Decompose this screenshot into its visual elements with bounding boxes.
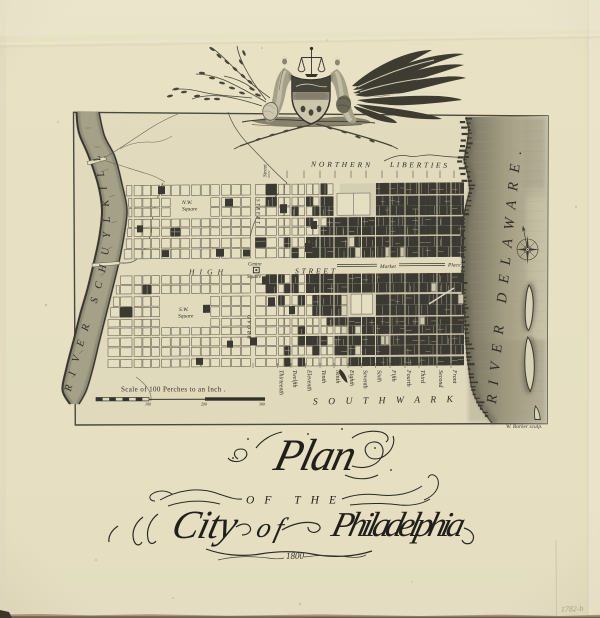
svg-text:L I B E R T I E S: L I B E R T I E S <box>389 160 447 170</box>
svg-text:Eighth: Eighth <box>348 369 354 386</box>
svg-text:Street: Street <box>263 164 269 177</box>
svg-text:200: 200 <box>201 402 207 407</box>
svg-text:Seventh: Seventh <box>362 370 368 389</box>
svg-text:1800: 1800 <box>286 551 305 561</box>
svg-text:S.W.: S.W. <box>179 307 189 313</box>
svg-text:Scale of 100 Perches to an Inc: Scale of 100 Perches to an Inch . <box>121 386 226 394</box>
svg-text:Plan: Plan <box>269 430 363 480</box>
svg-text:BROAD: BROAD <box>247 313 253 339</box>
svg-text:100: 100 <box>145 402 151 407</box>
svg-text:STREET: STREET <box>255 199 260 225</box>
svg-text:Third: Third <box>419 370 425 384</box>
svg-text:Sixth: Sixth <box>376 370 382 382</box>
svg-text:Place: Place <box>447 263 461 269</box>
svg-text:1782-b: 1782-b <box>561 604 584 614</box>
svg-text:Centre: Centre <box>248 263 262 268</box>
svg-text:Eleventh: Eleventh <box>306 369 312 391</box>
svg-text:Philadelphia: Philadelphia <box>327 504 470 543</box>
svg-text:Square: Square <box>178 314 194 320</box>
svg-text:Front: Front <box>451 369 457 384</box>
svg-text:Fourth: Fourth <box>405 369 411 387</box>
svg-text:N.W.: N.W. <box>181 200 193 206</box>
svg-text:N O R T H E R N: N O R T H E R N <box>310 159 371 169</box>
svg-text:City: City <box>168 503 244 547</box>
svg-text:Square: Square <box>247 275 262 280</box>
svg-text:Fifth: Fifth <box>390 369 397 382</box>
svg-text:W. Barker sculp.: W. Barker sculp. <box>506 424 542 430</box>
svg-text:Second: Second <box>437 370 443 388</box>
svg-text:Square: Square <box>182 207 198 213</box>
svg-text:300: 300 <box>259 402 265 407</box>
svg-text:Twelfth: Twelfth <box>291 370 298 388</box>
svg-text:S T R E E T: S T R E E T <box>295 267 336 276</box>
svg-text:Thirteenth: Thirteenth <box>278 370 284 395</box>
svg-text:Market: Market <box>379 264 396 270</box>
svg-text:Tenth: Tenth <box>320 370 326 383</box>
svg-text:Ninth: Ninth <box>334 369 340 383</box>
